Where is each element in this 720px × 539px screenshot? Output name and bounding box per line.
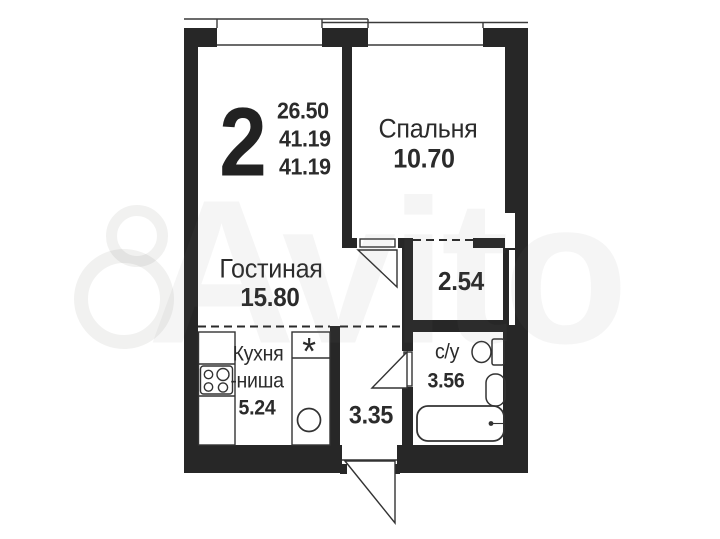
kitchen-label-line1: Кухня xyxy=(233,344,284,365)
floorplan-drawing xyxy=(0,0,720,539)
bedroom-area: 10.70 xyxy=(393,146,454,173)
kitchen-label-line2: -ниша xyxy=(230,371,283,392)
wardrobe-area: 2.54 xyxy=(438,268,484,294)
entrance-door-icon xyxy=(342,460,397,523)
kitchen-area: 5.24 xyxy=(239,398,276,419)
living-room-label: Гостиная xyxy=(219,256,322,283)
bathroom-label: с/у xyxy=(435,342,459,363)
bathroom-sink-icon xyxy=(486,374,505,406)
rooms-count: 2 xyxy=(219,94,266,191)
bathroom-area: 3.56 xyxy=(428,371,465,392)
doors xyxy=(342,236,412,523)
hallway-area: 3.35 xyxy=(349,404,393,429)
bedroom-door-icon xyxy=(357,236,398,287)
living-room-area: 15.80 xyxy=(240,284,299,310)
bedroom-label: Спальня xyxy=(379,116,478,143)
bedroom-door-swing xyxy=(358,250,397,287)
kitchen-note-asterisk: * xyxy=(302,333,315,371)
toilet-icon xyxy=(472,339,504,365)
floorplan-page: 2 26.50 41.19 41.19 Спальня 10.70 Гостин… xyxy=(0,0,720,539)
area-value-total: 41.19 xyxy=(279,128,331,151)
bathroom-door-icon xyxy=(372,352,412,388)
area-value-living-total: 26.50 xyxy=(277,100,329,123)
entrance-door-swing xyxy=(345,461,395,523)
kitchen-sink-icon xyxy=(298,409,321,432)
area-value-total-with-balcony: 41.19 xyxy=(279,156,331,179)
stove-icon xyxy=(201,366,233,394)
bathroom-door-swing xyxy=(372,352,407,388)
bathtub-icon xyxy=(417,406,504,441)
